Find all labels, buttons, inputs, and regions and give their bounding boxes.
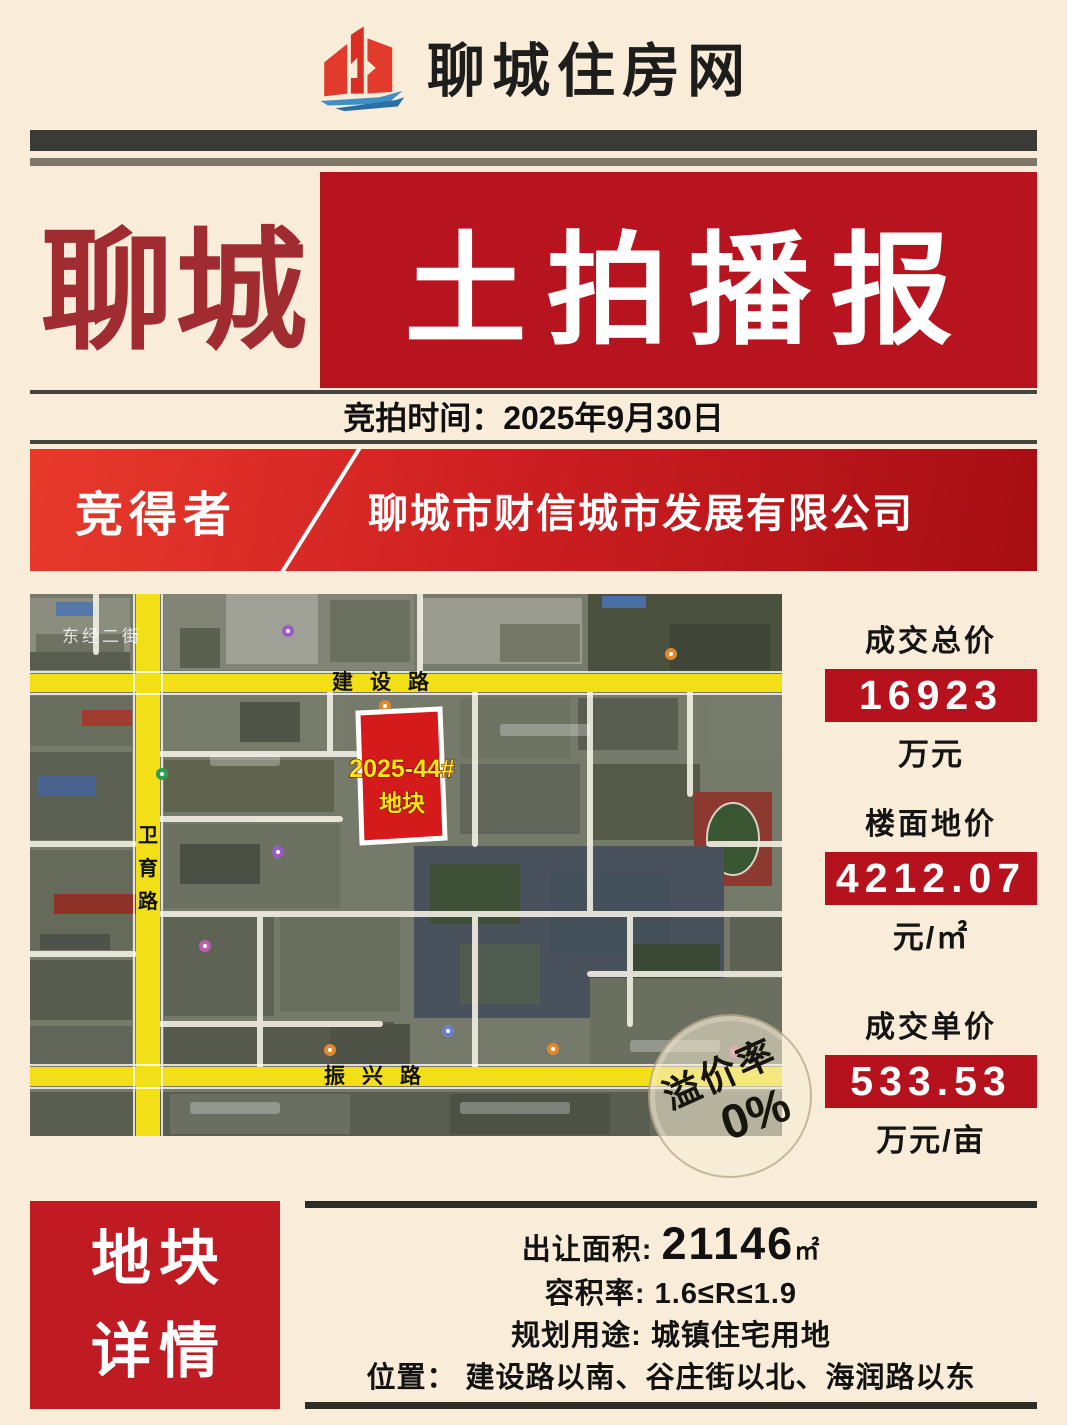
bulletin-title: 土拍播报 bbox=[385, 192, 973, 369]
road-label-weiyu-char-2: 育 bbox=[138, 856, 158, 880]
detail-loc-value: 建设路以南、谷庄街以北、海润路以东 bbox=[466, 1362, 976, 1394]
banner-slash bbox=[275, 449, 366, 571]
detail-loc-label: 位置： bbox=[366, 1362, 456, 1394]
detail-area-unit: ㎡ bbox=[794, 1237, 820, 1265]
auction-time-value: 2025年9月30日 bbox=[503, 393, 724, 439]
winner-banner: 竞得者 聊城市财信城市发展有限公司 bbox=[30, 449, 1037, 571]
detail-far-value: 1.6≤R≤1.9 bbox=[655, 1278, 797, 1310]
stat-value-box: 4212.07 bbox=[825, 852, 1037, 905]
detail-row-use: 规划用途: 城镇住宅用地 bbox=[305, 1312, 1037, 1354]
stamp-inner: 溢价率 0% bbox=[653, 1022, 807, 1170]
detail-area-label: 出让面积: bbox=[522, 1234, 653, 1266]
stats-column: 成交总价 16923 万元 楼面地价 4212.07 元/㎡ 成交单价 533.… bbox=[825, 594, 1037, 1136]
stat-floor-price: 楼面地价 4212.07 元/㎡ bbox=[825, 799, 1037, 957]
district-label: 东经二街 bbox=[62, 627, 142, 646]
road-label-jianshe: 建设路 bbox=[332, 670, 446, 694]
stat-value: 16923 bbox=[859, 672, 1003, 719]
parcel-label-line2: 地块 bbox=[379, 790, 425, 816]
site-logo-icon bbox=[315, 18, 407, 114]
stat-unit-price: 成交单价 533.53 万元/亩 bbox=[825, 1002, 1037, 1160]
stat-unit: 万元 bbox=[825, 729, 1037, 774]
parcel-details-section: 地块 详情 出让面积: 21146㎡ 容积率: 1.6≤R≤1.9 规划用途: … bbox=[30, 1201, 1037, 1409]
road-label-weiyu: 卫 育 路 bbox=[138, 825, 159, 913]
details-badge-line1: 地块 bbox=[83, 1212, 227, 1305]
stat-label: 楼面地价 bbox=[825, 799, 1037, 843]
details-panel: 出让面积: 21146㎡ 容积率: 1.6≤R≤1.9 规划用途: 城镇住宅用地… bbox=[305, 1201, 1037, 1409]
detail-use-label: 规划用途: bbox=[511, 1320, 642, 1352]
detail-area-value: 21146 bbox=[662, 1218, 795, 1269]
detail-row-far: 容积率: 1.6≤R≤1.9 bbox=[305, 1270, 1037, 1312]
stat-unit: 万元/亩 bbox=[825, 1115, 1037, 1160]
auction-time-row: 竞拍时间： 2025年9月30日 bbox=[30, 394, 1037, 438]
stat-label: 成交总价 bbox=[825, 616, 1037, 660]
details-badge-line2: 详情 bbox=[83, 1305, 227, 1398]
divider-bar-dark bbox=[30, 130, 1037, 151]
details-badge: 地块 详情 bbox=[30, 1201, 280, 1409]
stat-value: 533.53 bbox=[850, 1058, 1011, 1105]
premium-rate-stamp: 溢价率 0% bbox=[648, 1014, 812, 1178]
detail-far-label: 容积率: bbox=[545, 1278, 646, 1310]
stat-total-price: 成交总价 16923 万元 bbox=[825, 616, 1037, 774]
bulletin-title-box: 土拍播报 bbox=[320, 172, 1037, 388]
winner-label: 竞得者 bbox=[75, 449, 237, 571]
winner-company: 聊城市财信城市发展有限公司 bbox=[368, 449, 914, 571]
site-title: 聊城住房网 bbox=[427, 24, 752, 108]
stat-unit: 元/㎡ bbox=[825, 912, 1037, 957]
parcel-label-line1: 2025-44# bbox=[349, 755, 455, 783]
divider-rule-bottom bbox=[30, 440, 1037, 444]
stat-value-box: 533.53 bbox=[825, 1055, 1037, 1108]
detail-use-value: 城镇住宅用地 bbox=[651, 1320, 831, 1352]
stat-label: 成交单价 bbox=[825, 1002, 1037, 1046]
stat-value: 4212.07 bbox=[836, 855, 1026, 902]
road-label-weiyu-char-1: 卫 bbox=[138, 825, 158, 847]
parcel: 2025-44# 地块 bbox=[349, 709, 455, 843]
stat-value-box: 16923 bbox=[825, 669, 1037, 722]
auction-time-label: 竞拍时间： bbox=[343, 393, 503, 439]
divider-bar-gray bbox=[30, 158, 1037, 166]
masthead: 聊城 土拍播报 bbox=[30, 172, 1037, 388]
road-label-weiyu-char-3: 路 bbox=[138, 889, 159, 913]
city-title: 聊城 bbox=[30, 172, 320, 388]
header: 聊城住房网 bbox=[0, 0, 1067, 116]
detail-row-location: 位置： 建设路以南、谷庄街以北、海润路以东 bbox=[305, 1354, 1037, 1396]
land-auction-poster: 聊城住房网 聊城 土拍播报 竞拍时间： 2025年9月30日 竞得者 聊城市财信… bbox=[0, 0, 1067, 1425]
map-and-stats: 建设路 振兴路 卫 育 路 东经二街 bbox=[30, 594, 1037, 1136]
road-label-zhenxing: 振兴路 bbox=[324, 1064, 438, 1088]
detail-row-area: 出让面积: 21146㎡ bbox=[305, 1218, 1037, 1270]
